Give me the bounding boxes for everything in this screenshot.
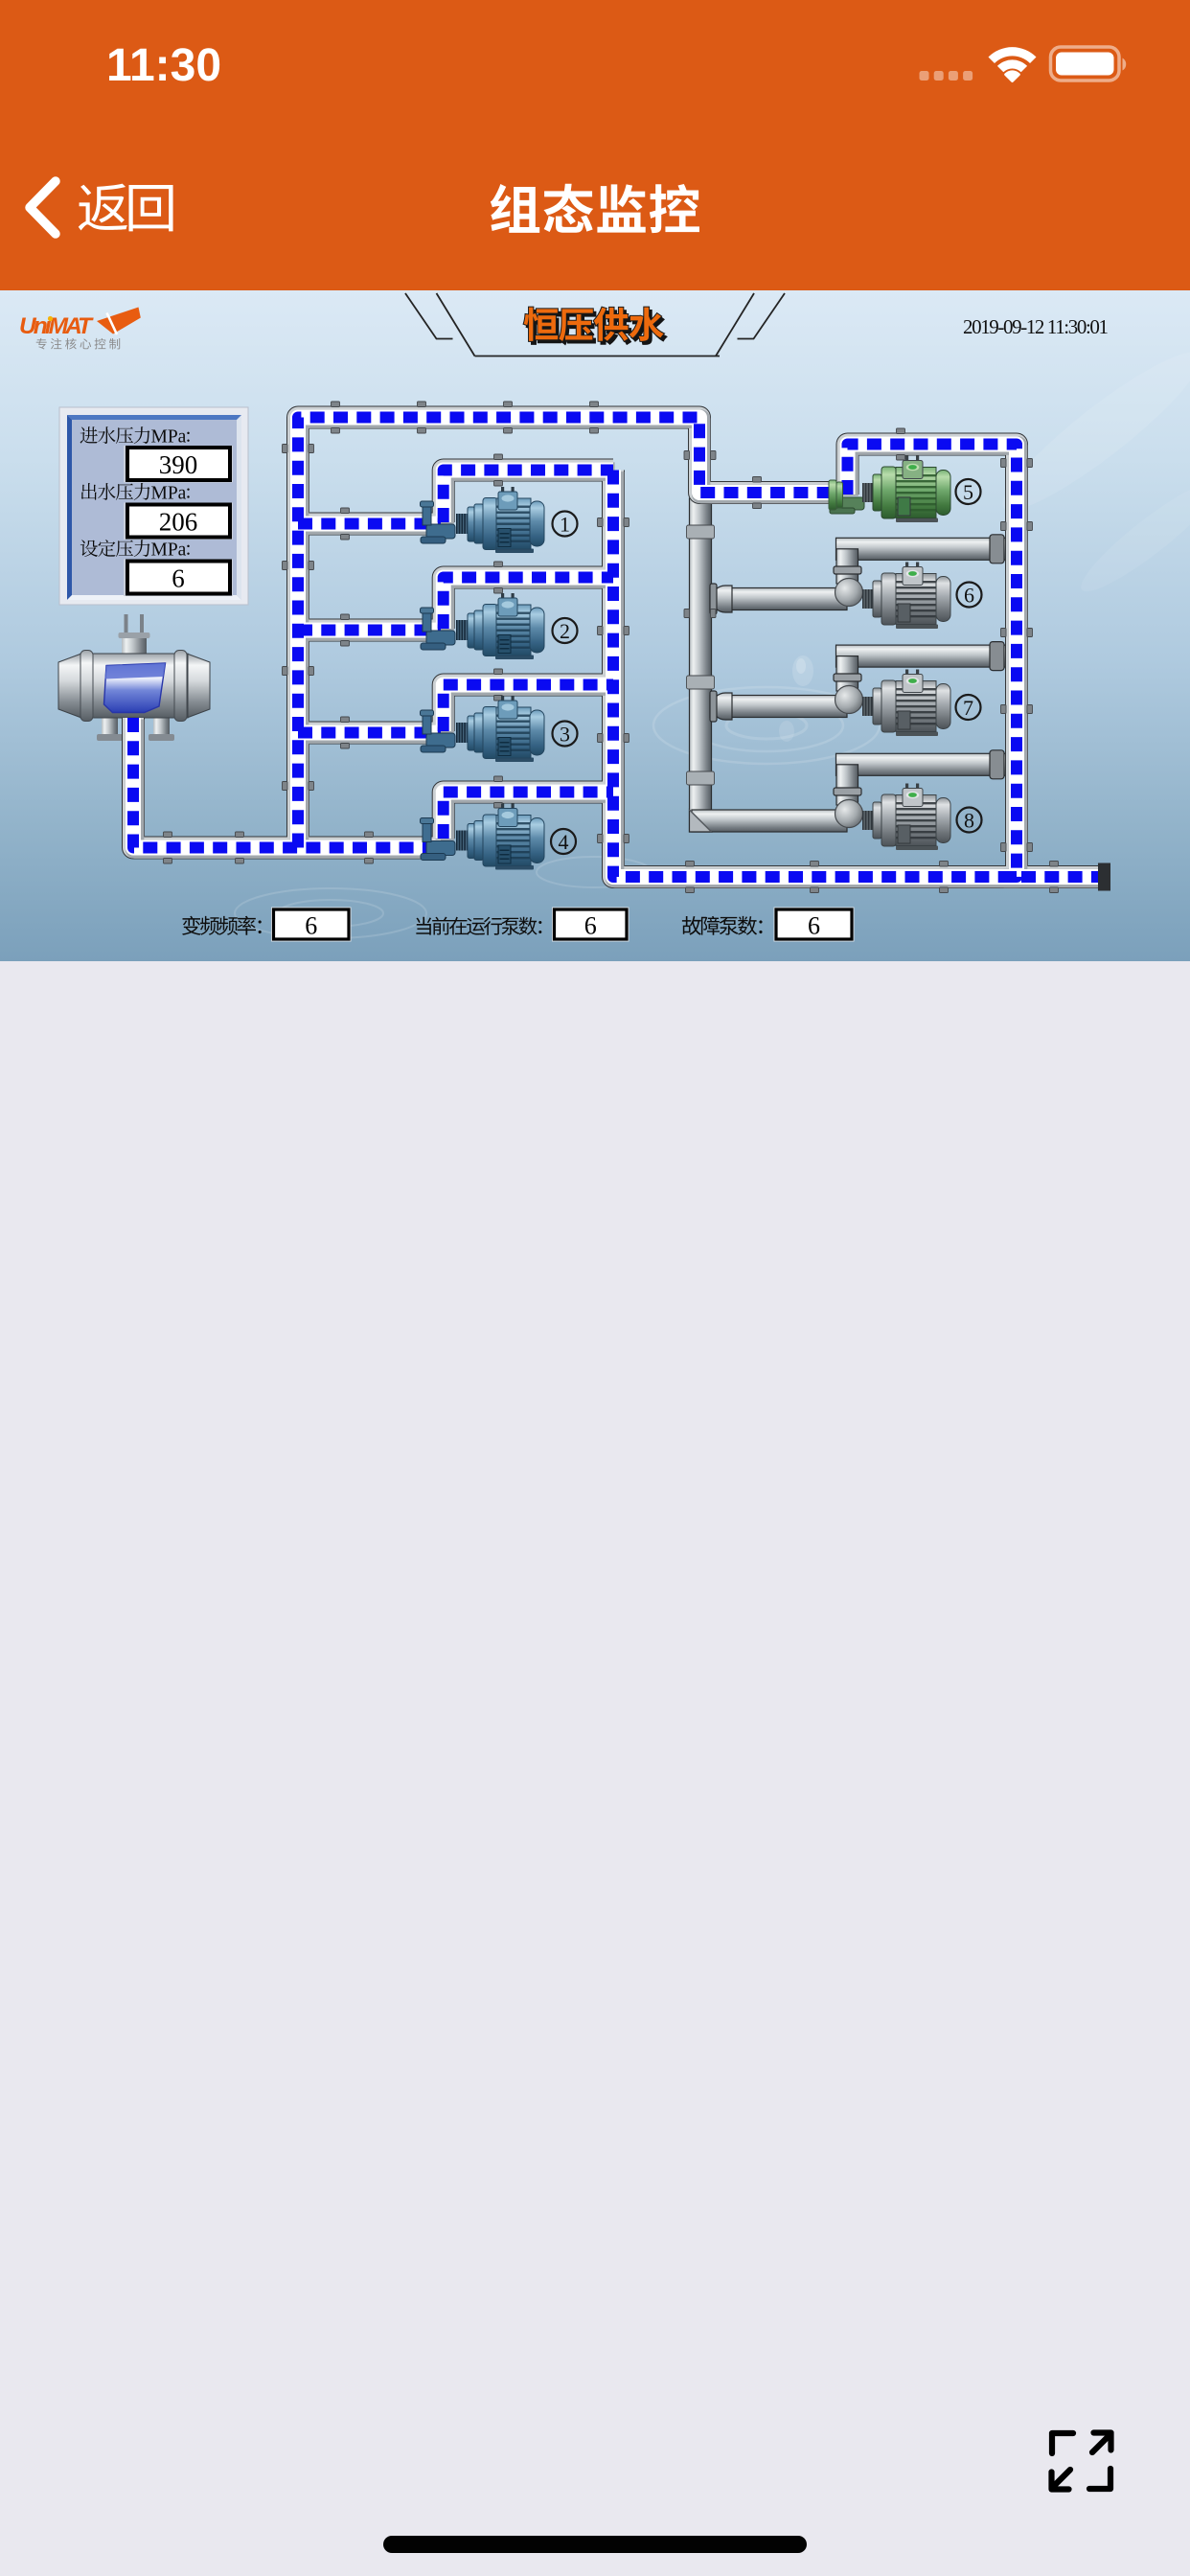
- svg-text:2: 2: [560, 619, 570, 643]
- svg-text:MPa: MPa: [151, 540, 187, 561]
- svg-text:2019-09-12 11:30:01: 2019-09-12 11:30:01: [963, 315, 1109, 338]
- svg-text:6: 6: [305, 912, 317, 940]
- svg-text:1: 1: [560, 512, 570, 536]
- svg-text:11:30: 11:30: [106, 40, 221, 91]
- svg-text:5: 5: [963, 480, 973, 504]
- svg-text:3: 3: [560, 722, 570, 746]
- svg-text:MPa: MPa: [151, 427, 187, 448]
- svg-text:6: 6: [808, 912, 820, 940]
- svg-text:6: 6: [964, 583, 974, 607]
- svg-text:6: 6: [172, 564, 185, 593]
- svg-text:8: 8: [964, 808, 974, 832]
- svg-text:MPa: MPa: [151, 483, 187, 503]
- svg-text:390: 390: [159, 450, 198, 479]
- svg-text:206: 206: [159, 508, 198, 537]
- svg-text:UniMAT: UniMAT: [19, 313, 94, 339]
- svg-text:4: 4: [559, 830, 569, 854]
- svg-text:6: 6: [584, 912, 597, 940]
- svg-text:7: 7: [963, 696, 973, 720]
